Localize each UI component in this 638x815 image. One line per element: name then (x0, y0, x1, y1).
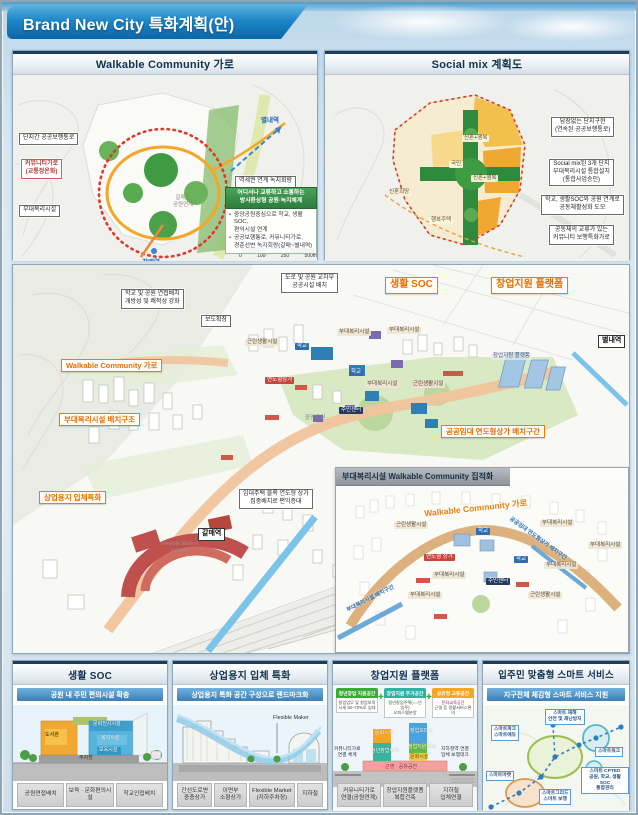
callout-welfare-structure: 부대복리시설 배치구조 (59, 413, 140, 426)
commercial-title: 상업용지 입체 특화 (173, 661, 327, 685)
life-soc-foot-1: 공원연접배치 (17, 783, 64, 807)
inset-school-1: 학교 (476, 528, 490, 535)
side-note-left: 커뮤니티가로 연결 체계 (334, 747, 360, 759)
tag-yeondo: 연도형상가 (265, 377, 294, 384)
title-banner: Brand New City 특화계획(안) (7, 6, 307, 39)
smart-title: 입주민 맞춤형 스마트 서비스 (483, 661, 629, 685)
callout-school-park: 학교 및 공원 연접배치 개방성 및 쾌적성 강화 (121, 289, 184, 309)
inset-geunrin-2: 근린생활시설 (528, 592, 562, 599)
inset-budae-2: 부대복리시설 (588, 542, 622, 549)
station-label-byeollae: 별내역 (261, 114, 279, 124)
page-title: Brand New City 특화계획(안) (7, 11, 234, 35)
smart-market: 스마트마켓 (486, 771, 514, 781)
inset-jumin: 주민센터 (486, 578, 510, 585)
tag-budae-3: 부대복리시설 (365, 381, 399, 388)
startup-title: 창업지원 플랫폼 (333, 661, 477, 685)
callout-community-street2: 공동체의 교류가 있는 커뮤니티 보행특화가로 (549, 225, 614, 245)
station-label-galmae: 갈매역 (142, 256, 160, 261)
callout-welfare-facility: 부대복리시설 (19, 205, 60, 217)
commercial-foot-2: 이면부 소형상가 (214, 783, 246, 807)
life-soc-diagram (13, 705, 167, 781)
callout-startup-platform: 창업지원 플랫폼 (491, 277, 568, 294)
smart-cpted: 스마트 CPTED 공원, 학교, 생활SOC 통합관리 (581, 767, 629, 794)
inset-budae-4: 부대복리시설 (432, 572, 466, 579)
label-welfare: 복지시설 (101, 736, 119, 742)
smart-subtitle: 지구전체 체감형 스마트 서비스 지원 (487, 688, 625, 701)
panel-commercial: 상업용지 입체 특화 상업용지 특화 공간 구성으로 랜드마크화 Flexibl… (172, 660, 328, 810)
chip-housing-space: 창업지원 주거공간 청년창업주택(○○년 입주) 오피스텔분양 (384, 688, 426, 718)
commercial-foot-4: 지하철 (297, 783, 323, 807)
inset-budae-1: 부대복리시설 (540, 520, 574, 527)
plus-icon: ✚ (378, 693, 384, 701)
label-culture: 문화전시시설 (93, 722, 121, 728)
callout-sidewalk: 보도확장 (201, 315, 231, 327)
label-library: 도서관 (45, 733, 59, 739)
tower-youth-housing: 청년창업주택 (371, 749, 399, 755)
cloud (502, 12, 638, 42)
mix-label-haengbok: 행복주택 (429, 217, 453, 224)
tower-base: 근생 · 공유공간 (385, 765, 417, 771)
tower-culture-2: 문화시설 (410, 755, 428, 761)
chip-exchange-space: 공유형 교류공간 문화교육공간 근생 등 생활서비스편의 (432, 688, 474, 718)
callout-no-fence: 담장없는 단지구현 (연속된 공공보행통로) (551, 117, 614, 137)
panel-master-plan: 학교 및 공원 연접배치 개방성 및 쾌적성 강화 보도확장 도로 및 공원 교… (12, 264, 630, 654)
commercial-subtitle: 상업용지 특화 공간 구성으로 랜드마크화 (177, 688, 323, 701)
panel-walkable-community: Walkable Community 가로 (12, 50, 318, 260)
tower-office: 창업오피스 (410, 729, 433, 735)
inset-budae-3: 부대복리시설 (544, 562, 578, 569)
green-infobox-bullet-1: 중앙공원중심으로 학교, 생활 SOC, 편익시설 연계 (229, 212, 313, 235)
mix-label-shinhon: 신혼희망 (387, 189, 411, 196)
label-flexible-maker: Flexible Maker (273, 715, 309, 721)
tag-flexible-market: Flexible Market Square (161, 541, 198, 554)
smart-grid: 스마트그리드 스마트 보행 (539, 789, 571, 805)
inset-school-2: 학교 (514, 556, 528, 563)
panel-startup: 창업지원 플랫폼 청년창업 지원공간 창업업무 및 창업보육 시세 50~70%… (332, 660, 478, 810)
callout-crossing: 도로 및 공원 교차부 공공시설 배치 (281, 273, 338, 293)
green-infobox: 어디서나 교류하고 소통하는 방사환상형 공원·녹지체계 중앙공원중심으로 학교… (225, 187, 317, 254)
callout-public-walkway: 단지간 공공보행통로 (19, 133, 78, 145)
panel-walkable-title: Walkable Community 가로 (13, 51, 317, 75)
tower-support: 창업지원시설 (408, 745, 436, 751)
smart-park-edu: 스마트파크 스마트에듀 (491, 725, 519, 741)
plan-poster: Brand New City 특화계획(안) Walkable Communit… (0, 0, 638, 815)
panel-life-soc: 생활 SOC 공원 내 주민 편의시설 확충 도서관 문화전시시설 (12, 660, 168, 810)
life-soc-title: 생활 SOC (13, 661, 167, 685)
life-soc-foot-2: 보육 · 문화편의시설 (66, 783, 113, 807)
callout-social-mix: Social mix된 3개 단지 부대복리시설 통합설치 (통합사업승인) (549, 159, 614, 186)
smart-work: 스마트워크 (595, 747, 623, 757)
callout-community-street: 커뮤니티가로 (교통정온화) (21, 159, 62, 179)
green-infobox-title: 어디서나 교류하고 소통하는 방사환상형 공원·녹지체계 (225, 187, 317, 209)
callout-rental-block: 임대주택 블록 연도형 상가 집중배치로 편익증대 (239, 489, 313, 509)
chip-support-space: 청년창업 지원공간 창업업무 및 창업보육 시세 50~70%로 임대 (336, 688, 378, 713)
callout-public-rental-shops: 공공임대 연도형상가 배치구간 (441, 425, 545, 438)
callout-life-soc: 생활 SOC (385, 277, 438, 294)
mix-label-2: 신혼+행복 (471, 175, 498, 182)
life-soc-foot-3: 학교인접배치 (116, 783, 163, 807)
tag-central-park: 중앙공원 (305, 415, 325, 422)
inset-geunrin-1: 근린생활시설 (394, 522, 428, 529)
mix-label-1: 신혼+행복 (462, 135, 489, 142)
tower-culture-1: 문화시설 (375, 731, 393, 737)
startup-foot-2: 창업지원플랫폼 복합건축 (383, 783, 427, 807)
inset-budae-5: 부대복리시설 (408, 592, 442, 599)
callout-commercial: 상업용지 입체특화 (39, 491, 106, 504)
tag-budae-1: 부대복리시설 (337, 329, 371, 336)
inset-yeondo: 연도형 상가 (424, 554, 455, 561)
startup-foot-3: 지하철 입체연결 (429, 783, 473, 807)
life-soc-subtitle: 공원 내 주민 편의시설 확충 (17, 688, 163, 701)
commercial-foot-1: 간선도로변 중층상가 (177, 783, 212, 807)
green-infobox-bullet-2: 공공보행통로, 커뮤니티가로, 경춘선변 녹지회랑(갈매~별내역) (229, 235, 313, 250)
tag-school-2: 학교 (349, 369, 363, 376)
inset-walkable-cluster: 부대복리시설 Walkable Community 집적화 (335, 467, 629, 653)
panel-socialmix-title: Social mix 계획도 (325, 51, 629, 75)
panel-social-mix: Social mix 계획도 신혼+행복 국민 (324, 50, 630, 260)
tag-budae-2: 부대복리시설 (387, 327, 421, 334)
tag-startup-building: 창업지원 플랫폼 (491, 353, 532, 360)
commercial-foot-3: Flexible Market (지하주차장) (249, 783, 295, 807)
label-childcare: 보육시설 (99, 748, 117, 754)
callout-walkable-street: Walkable Community 가로 (61, 359, 162, 372)
mix-label-gukmin: 국민 (449, 161, 463, 168)
side-note-right: 지하철역 연결 입체 보행데크 (441, 747, 469, 759)
panel-smart-service: 입주민 맞춤형 스마트 서비스 지구전체 체감형 스마트 서비스 지원 (482, 660, 630, 810)
callout-school-soc: 학교, 생활SOC와 공원 연계로 공동체활성화 도모 (541, 195, 624, 215)
plus-icon: ✚ (426, 693, 432, 701)
smart-disaster: 스마트 재해 안전 및 재난방지 (545, 709, 585, 725)
tag-school-1: 학교 (295, 343, 309, 350)
label-parking: 주차장 (79, 756, 93, 762)
tag-geunrin-2: 근린생활시설 (411, 381, 445, 388)
inset-title: 부대복리시설 Walkable Community 집적화 (336, 468, 510, 486)
station-galmae: 갈매역 (198, 528, 225, 541)
tag-jumin: 주민센터 (339, 407, 363, 414)
tag-geunrin-1: 근린생활시설 (245, 339, 279, 346)
startup-foot-1: 커뮤니티가로 연결(공원연계) (337, 783, 381, 807)
stream-note: 갈매천 공원연계 (173, 195, 193, 208)
station-byeollae: 별내역 (598, 335, 625, 348)
